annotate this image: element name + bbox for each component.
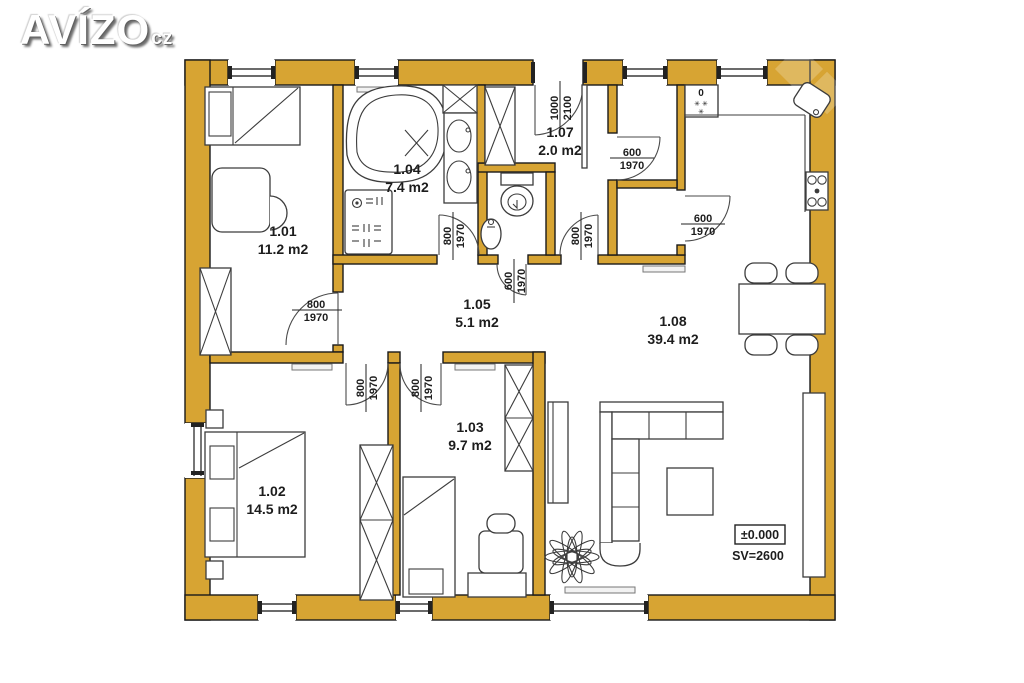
door-size-label: 800 1970: [355, 364, 380, 412]
svg-text:1970: 1970: [423, 376, 435, 400]
room-area-label: 9.7 m2: [448, 437, 492, 453]
window: [228, 60, 275, 85]
living-dining: [545, 263, 825, 585]
logo-suffix: cz: [151, 28, 173, 49]
window: [355, 60, 398, 85]
entrance-jamb: [583, 62, 587, 83]
elevation-label: ±0.000: [741, 528, 779, 542]
svg-text:600: 600: [694, 213, 712, 225]
svg-text:800: 800: [410, 379, 422, 397]
svg-text:800: 800: [307, 299, 325, 311]
svg-text:1970: 1970: [304, 312, 328, 324]
fridge-zero-label: 0: [698, 88, 704, 99]
svg-text:1970: 1970: [516, 269, 528, 293]
fridge-stars: ✳ ✳: [694, 100, 708, 108]
room-area-label: 11.2 m2: [258, 241, 309, 257]
washbasin-small: [481, 219, 501, 249]
bed-single: [403, 477, 455, 597]
level-annotation: ±0.000 SV=2600: [732, 525, 785, 563]
entry-wardrobe: [485, 87, 515, 165]
svg-text:800: 800: [355, 379, 367, 397]
svg-text:800: 800: [442, 227, 454, 245]
room-id-label: 1.05: [463, 296, 490, 312]
room-area-label: 2.0 m2: [538, 142, 582, 158]
svg-text:600: 600: [623, 147, 641, 159]
wc-fixtures: [481, 173, 533, 249]
door-size-label: 800 1970: [410, 364, 435, 412]
room-id-label: 1.01: [269, 223, 296, 239]
washing-machine: [345, 190, 392, 254]
wardrobe: [360, 445, 393, 600]
room-id-label: 1.02: [258, 483, 285, 499]
svg-text:1970: 1970: [368, 376, 380, 400]
door-size-label: 600 1970: [610, 147, 654, 172]
door-size-label: 800 1970: [442, 212, 467, 260]
svg-text:1970: 1970: [455, 224, 467, 248]
double-washbasin: [444, 113, 477, 203]
bed-double: [205, 432, 305, 557]
svg-text:800: 800: [570, 227, 582, 245]
window: [396, 595, 432, 620]
room-area-label: 39.4 m2: [647, 331, 699, 347]
coffee-table: [667, 468, 713, 515]
window: [717, 60, 767, 85]
clear-height-label: SV=2600: [732, 549, 784, 563]
door-size-label: 800 1970: [292, 299, 342, 324]
radiator: [292, 364, 332, 370]
nightstand: [206, 561, 223, 579]
dining-table: [739, 263, 825, 355]
svg-text:1000: 1000: [549, 96, 561, 120]
window: [623, 60, 667, 85]
svg-text:600: 600: [503, 272, 515, 290]
radiator: [643, 266, 685, 272]
room-1-02-furniture: [205, 410, 393, 600]
svg-text:1970: 1970: [620, 160, 644, 172]
radiator: [455, 364, 495, 370]
stove: [806, 172, 828, 210]
svg-text:1970: 1970: [583, 224, 595, 248]
window: [258, 595, 296, 620]
door-size-label: 600 1970: [503, 259, 528, 303]
avizo-logo: AVÍZOcz: [20, 6, 173, 54]
logo-text: AVÍZO: [20, 6, 150, 53]
bed-single: [205, 87, 300, 145]
svg-text:2100: 2100: [562, 96, 574, 120]
room-id-label: 1.08: [659, 313, 686, 329]
plant: [545, 529, 599, 584]
window: [550, 595, 648, 620]
entry-shelf: [582, 85, 587, 168]
bathroom-cabinet: [443, 85, 477, 113]
toilet: [501, 173, 533, 216]
tv-sideboard: [803, 393, 825, 577]
entrance-jamb: [531, 62, 535, 83]
svg-text:1970: 1970: [691, 226, 715, 238]
radiator: [565, 587, 635, 593]
wardrobe: [200, 268, 231, 355]
room-1-01-furniture: [200, 87, 300, 355]
nightstand: [206, 410, 223, 428]
room-area-label: 7.4 m2: [385, 179, 429, 195]
floor-plan: 0 ✳ ✳ ✳: [0, 0, 1024, 683]
floorplan-page: AVÍZOcz: [0, 0, 1024, 683]
room-id-label: 1.04: [393, 161, 420, 177]
door-1-02: [346, 363, 388, 405]
room-area-label: 5.1 m2: [455, 314, 499, 330]
desk-chair: [468, 514, 526, 597]
room-id-label: 1.03: [456, 419, 483, 435]
fridge: 0 ✳ ✳ ✳: [685, 85, 718, 117]
room-area-label: 14.5 m2: [246, 501, 298, 517]
shelf-unit: [548, 402, 568, 503]
wardrobe: [505, 365, 533, 471]
